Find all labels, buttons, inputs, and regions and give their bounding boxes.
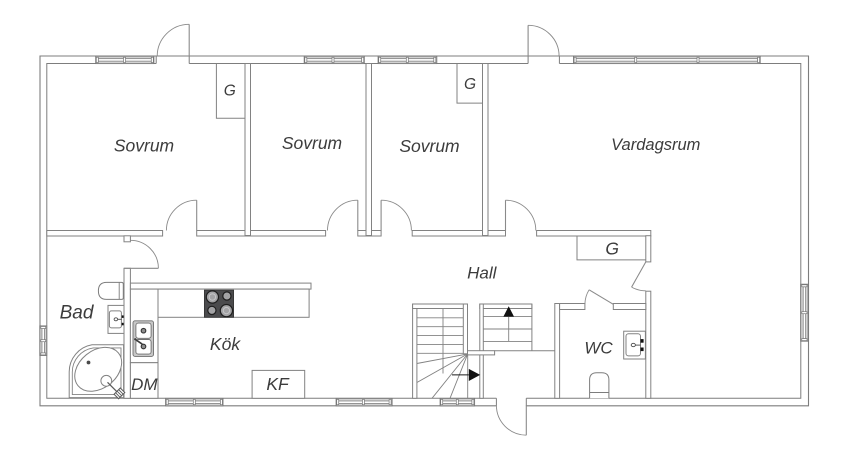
svg-text:Sovrum: Sovrum [282, 133, 342, 153]
svg-text:Hall: Hall [467, 264, 498, 283]
svg-text:G: G [464, 76, 476, 93]
svg-text:WC: WC [584, 339, 613, 358]
svg-text:G: G [224, 82, 236, 99]
svg-text:G: G [605, 239, 619, 259]
svg-text:Bad: Bad [60, 302, 95, 323]
svg-text:DM: DM [131, 375, 158, 394]
svg-text:Vardagsrum: Vardagsrum [611, 136, 700, 154]
svg-text:Sovrum: Sovrum [114, 136, 174, 156]
svg-text:Sovrum: Sovrum [399, 136, 459, 156]
svg-text:Kök: Kök [210, 334, 241, 354]
svg-text:KF: KF [266, 374, 290, 394]
